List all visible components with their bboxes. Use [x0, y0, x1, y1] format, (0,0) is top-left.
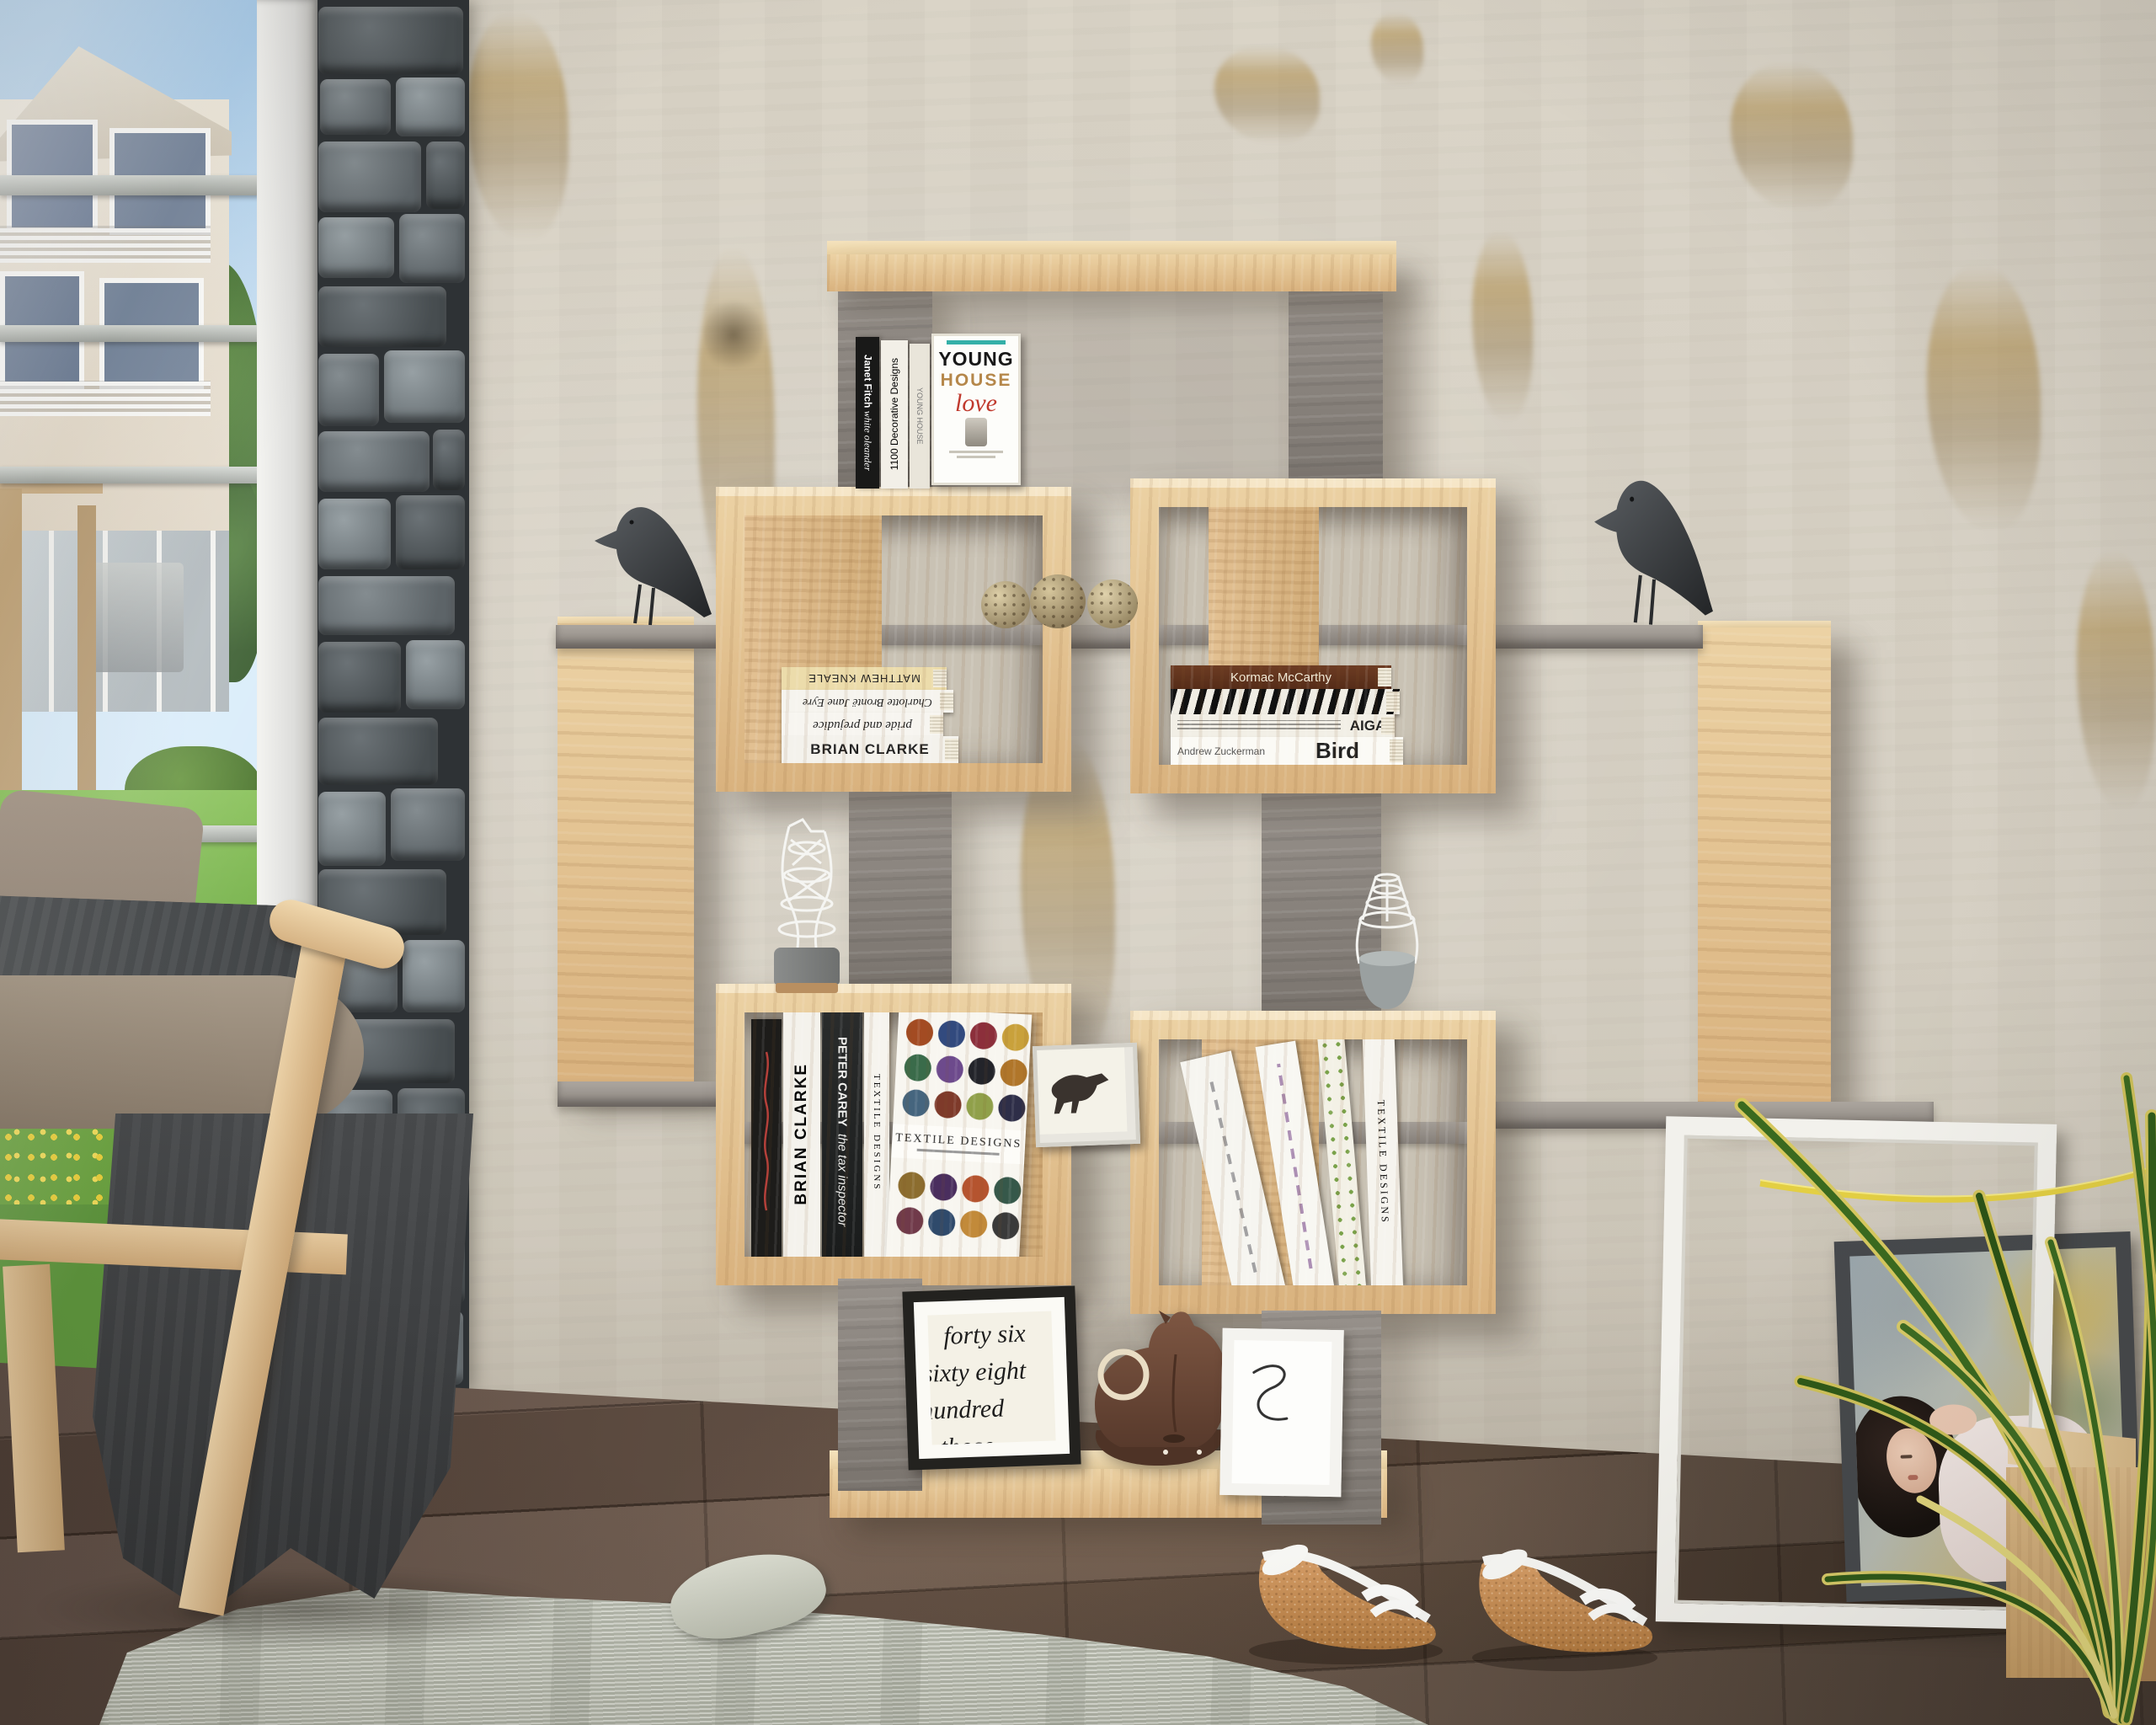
stone — [318, 142, 421, 212]
horse-print — [1037, 1047, 1127, 1135]
framed-horse-print — [1033, 1043, 1140, 1147]
book-spine-text: pride and prejudice — [782, 718, 943, 732]
stone — [318, 354, 379, 426]
book-spine-text: 1100 Decorative Designs — [889, 358, 900, 470]
page-edge — [933, 670, 947, 687]
book-stack: MATTHEW KNEALE Charlotte Brontë Jane Eyr… — [782, 662, 960, 763]
cover-smalltext-line — [949, 451, 1003, 453]
cover-word: love — [955, 391, 997, 416]
book: PETER CAREY the tax inspector — [822, 1012, 862, 1257]
squiggle-drawing — [1232, 1340, 1306, 1459]
cover-word: HOUSE — [941, 371, 1012, 391]
book — [751, 1019, 782, 1257]
bird-figurine-left — [588, 497, 714, 627]
stone — [403, 940, 465, 1012]
handwriting-line: those — [940, 1425, 1056, 1445]
cover-banner — [947, 340, 1006, 344]
book: Charlotte Brontë Jane Eyre — [782, 690, 953, 713]
book: TEXTILE DESIGNS — [864, 1012, 889, 1257]
cover-photo — [965, 418, 987, 446]
stone — [318, 7, 463, 74]
stone — [320, 79, 391, 135]
stone — [399, 214, 465, 283]
book-row: TEXTILE DESIGNS — [1233, 1039, 1460, 1285]
sandal-left — [1257, 1538, 1435, 1649]
cube-interior: MATTHEW KNEALE Charlotte Brontë Jane Eyr… — [744, 515, 1043, 763]
stone — [318, 286, 446, 347]
cube-edge-highlight — [1130, 1011, 1496, 1020]
book-spine-text: Bird — [1272, 738, 1403, 764]
pinecone — [1087, 579, 1138, 628]
top-shelf-books: Janet Fitch white oleander 1100 Decorati… — [856, 335, 1021, 489]
page-edge — [1386, 692, 1400, 712]
handwriting-paper: forty six sixty eight hundred those — [927, 1311, 1055, 1445]
stone — [318, 217, 394, 278]
illegible-spine-text — [1277, 1063, 1313, 1269]
living-room-scene: MATTHEW KNEALE Charlotte Brontë Jane Eyr… — [0, 0, 2156, 1725]
dense-text-lines — [1177, 720, 1341, 732]
stone — [318, 718, 438, 785]
shelf-top-panel — [827, 254, 1396, 291]
book: 1100 Decorative Designs — [881, 340, 908, 489]
page-edge — [940, 692, 953, 710]
stone — [433, 430, 465, 490]
stone — [426, 142, 465, 209]
left-oak-side-panel — [558, 623, 694, 1085]
stone — [391, 788, 465, 861]
book: Janet Fitch white oleander — [856, 337, 879, 489]
book-spine-text: PETER CAREY — [835, 1037, 850, 1127]
book-spine-text: BRIAN CLARKE — [792, 1063, 811, 1205]
cork-wedge-sandals — [1236, 1531, 1657, 1700]
handwriting-line: forty six — [942, 1314, 1052, 1354]
stone — [406, 640, 465, 709]
chair-shadow — [34, 1567, 573, 1651]
pinecone — [1030, 574, 1086, 628]
wire-dressform — [762, 814, 851, 951]
book-row: BRIAN CLARKE PETER CAREY the tax inspect… — [751, 1012, 1038, 1257]
book-spine-text: the tax inspector — [835, 1134, 850, 1226]
cube-interior: Kormac McCarthy AIGA Andrew Zuckerman Bi… — [1159, 507, 1467, 765]
cube-interior: BRIAN CLARKE PETER CAREY the tax inspect… — [744, 1012, 1043, 1257]
squiggle-frame — [1219, 1328, 1343, 1497]
stone — [384, 350, 465, 423]
stone — [318, 792, 386, 866]
cube-edge-highlight — [1130, 478, 1496, 488]
wire-vase-right — [1341, 869, 1433, 1021]
shelf-grey-upright — [849, 790, 952, 989]
page-edge — [1378, 668, 1391, 686]
textile-designs-cover: TEXTILE DESIGNS — [886, 1012, 1032, 1257]
book: MATTHEW KNEALE — [782, 667, 947, 690]
cube-lower-right: TEXTILE DESIGNS — [1130, 1011, 1496, 1314]
handwriting-line: sixty eight — [927, 1351, 1054, 1392]
frame-mat: forty six sixty eight hundred those — [914, 1297, 1070, 1459]
pinecones — [981, 574, 1150, 630]
sandal-right — [1478, 1543, 1652, 1652]
cover-word: YOUNG — [938, 348, 1013, 371]
stone — [318, 431, 430, 492]
book: Kormac McCarthy — [1171, 665, 1391, 689]
stone — [318, 499, 391, 569]
book-spine-text: YOUNG HOUSE — [915, 387, 924, 445]
cube-upper-left: MATTHEW KNEALE Charlotte Brontë Jane Eyr… — [716, 487, 1071, 792]
page-edge — [945, 739, 958, 761]
handwriting-frame: forty six sixty eight hundred those — [902, 1285, 1081, 1470]
book: AIGA — [1171, 714, 1395, 737]
book-spine-text: BRIAN CLARKE — [782, 741, 958, 758]
wire-bottle — [1341, 869, 1433, 1021]
cover-smalltext-line — [957, 456, 995, 458]
stone — [396, 77, 465, 136]
book-stack: Kormac McCarthy AIGA Andrew Zuckerman Bi… — [1171, 662, 1415, 765]
cube-interior: TEXTILE DESIGNS — [1159, 1039, 1467, 1285]
book-zebra-pattern — [1171, 689, 1400, 714]
bird-figurine-right — [1588, 468, 1716, 627]
book: BRIAN CLARKE — [782, 736, 958, 763]
book-spine-text: Kormac McCarthy — [1171, 670, 1391, 685]
young-house-love-cover: YOUNG HOUSE love — [931, 334, 1021, 485]
variegated-plant — [1701, 1028, 2156, 1725]
stone — [318, 576, 455, 635]
page-edge — [1381, 717, 1395, 734]
book: BRIAN CLARKE — [783, 1012, 820, 1257]
book: YOUNG HOUSE — [910, 344, 930, 489]
page-edge — [1390, 740, 1403, 762]
cube-lower-left: BRIAN CLARKE PETER CAREY the tax inspect… — [716, 984, 1071, 1285]
book-spine-text: MATTHEW KNEALE — [782, 672, 947, 685]
shelf-grey-upright — [1289, 275, 1383, 495]
handwriting-line: hundred — [927, 1388, 1055, 1430]
book-spine-text: TEXTILE DESIGNS — [872, 1074, 882, 1191]
book-spine-text: Janet Fitch — [862, 355, 874, 408]
book-spine-text: TEXTILE DESIGNS — [1374, 1100, 1391, 1225]
book: pride and prejudice — [782, 713, 943, 736]
red-script-decoration — [758, 1045, 775, 1231]
vase-concrete-base — [774, 948, 840, 985]
wire-vase-left — [762, 814, 851, 1000]
stone — [396, 495, 465, 569]
book-spine-text: Andrew Zuckerman — [1171, 745, 1272, 757]
book: Andrew Zuckerman Bird — [1171, 737, 1403, 765]
book: TEXTILE DESIGNS — [1363, 1039, 1403, 1285]
page-edge — [930, 715, 943, 734]
vase-wood-foot — [776, 983, 838, 993]
stone — [318, 642, 401, 713]
pinecone — [981, 581, 1030, 628]
cube-upper-right: Kormac McCarthy AIGA Andrew Zuckerman Bi… — [1130, 478, 1496, 793]
leather-rocking-horse — [1071, 1304, 1244, 1471]
book-spine-text: Charlotte Brontë Jane Eyre — [782, 695, 953, 708]
book-spine-text: white oleander — [862, 411, 874, 472]
